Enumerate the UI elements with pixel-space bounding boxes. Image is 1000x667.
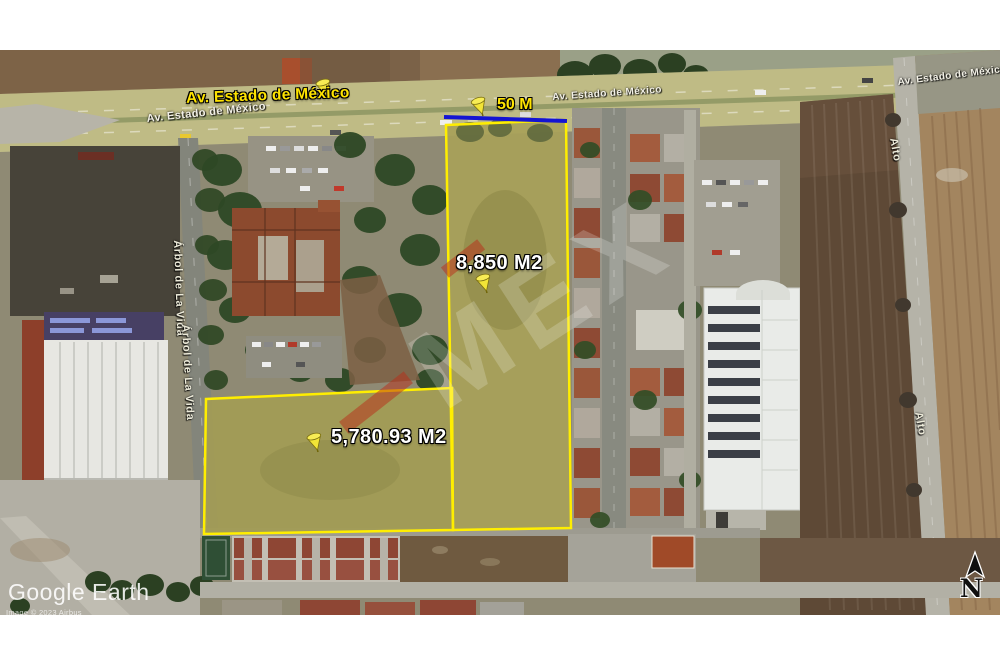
google-earth-viewport[interactable]: MEX Av. Estado de México Av. Estado de M…: [0, 0, 1000, 667]
residential-street-block: [572, 108, 702, 532]
satellite-scene: [0, 50, 1000, 615]
solar-panel-rows: [708, 306, 760, 458]
bottom-left-area: [0, 480, 214, 615]
right-fields: [800, 50, 1000, 615]
left-warehouse: [22, 312, 168, 486]
